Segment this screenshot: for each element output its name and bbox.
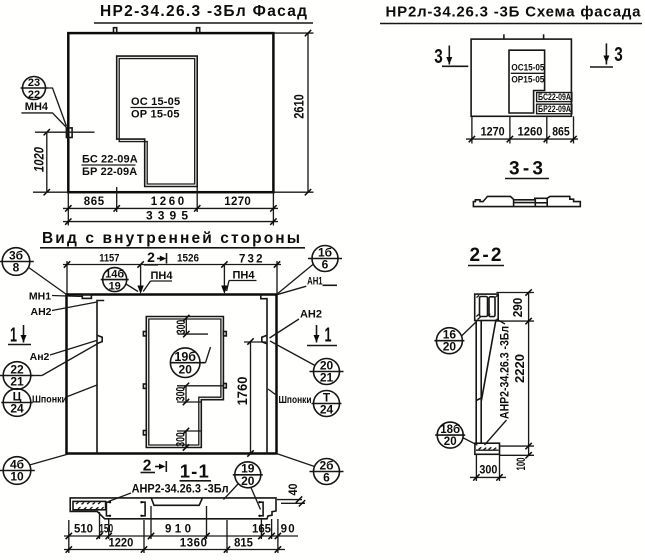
svg-text:300: 300 (175, 387, 187, 402)
svg-text:Шпонки: Шпонки (32, 394, 67, 406)
svg-text:6: 6 (322, 258, 329, 272)
svg-text:815: 815 (234, 537, 253, 549)
svg-text:1157: 1157 (99, 253, 119, 265)
svg-text:3-3: 3-3 (509, 159, 544, 180)
svg-text:Шпонки: Шпонки (279, 394, 312, 406)
svg-text:3: 3 (434, 46, 443, 68)
svg-text:БР 22-09А: БР 22-09А (82, 166, 137, 178)
svg-text:732: 732 (239, 254, 263, 266)
svg-text:БС22-09А: БС22-09А (538, 92, 571, 102)
svg-text:2220: 2220 (512, 354, 527, 383)
svg-text:АН2: АН2 (300, 309, 322, 321)
svg-text:1020: 1020 (31, 147, 47, 172)
svg-text:2610: 2610 (291, 94, 307, 119)
svg-text:1760: 1760 (235, 377, 250, 406)
svg-text:МН1: МН1 (29, 291, 51, 303)
svg-text:Вид с внутренней стороны: Вид с внутренней стороны (42, 230, 300, 247)
svg-text:АНР2-34.26.3 -3Бл: АНР2-34.26.3 -3Бл (132, 482, 229, 496)
svg-text:300: 300 (175, 432, 187, 447)
svg-text:2: 2 (147, 249, 155, 265)
svg-text:1270: 1270 (224, 196, 251, 208)
svg-text:865: 865 (552, 127, 570, 139)
svg-text:24: 24 (320, 403, 334, 417)
svg-text:10: 10 (10, 470, 24, 484)
svg-text:20: 20 (444, 436, 457, 448)
svg-text:1: 1 (10, 325, 17, 347)
svg-text:ОР 15-05: ОР 15-05 (131, 109, 180, 121)
svg-text:ПН4: ПН4 (151, 270, 174, 282)
svg-text:910: 910 (165, 524, 191, 536)
svg-text:2-2: 2-2 (470, 245, 503, 266)
svg-text:Ан2: Ан2 (30, 351, 50, 363)
svg-text:40: 40 (288, 484, 300, 496)
svg-text:165: 165 (252, 524, 272, 536)
svg-text:ОС 15-05: ОС 15-05 (131, 96, 180, 108)
svg-text:БР22-09А: БР22-09А (538, 104, 571, 114)
svg-text:290: 290 (511, 298, 525, 318)
svg-text:АН1: АН1 (307, 276, 323, 288)
svg-text:ОС15-05: ОС15-05 (511, 63, 545, 74)
svg-text:АН2: АН2 (30, 306, 51, 318)
svg-text:21: 21 (320, 371, 334, 385)
svg-text:510: 510 (74, 524, 93, 536)
svg-text:1: 1 (325, 325, 332, 347)
svg-text:ОР15-05: ОР15-05 (511, 75, 545, 86)
svg-text:19: 19 (109, 281, 121, 293)
svg-text:100: 100 (514, 457, 528, 470)
svg-text:АНР2-34.26.3 -3Бл: АНР2-34.26.3 -3Бл (498, 326, 512, 419)
svg-text:150: 150 (99, 524, 113, 536)
svg-text:ПН4: ПН4 (233, 270, 256, 282)
svg-text:22: 22 (28, 89, 40, 101)
svg-text:МН4: МН4 (25, 101, 49, 113)
svg-text:24: 24 (10, 402, 24, 416)
svg-text:1270: 1270 (481, 127, 505, 139)
svg-text:300: 300 (176, 320, 188, 335)
svg-text:8: 8 (13, 261, 20, 275)
svg-text:20: 20 (179, 362, 193, 376)
svg-text:БС 22-09А: БС 22-09А (82, 154, 138, 166)
svg-text:1220: 1220 (109, 537, 134, 549)
svg-text:3: 3 (614, 44, 623, 66)
svg-text:1360: 1360 (180, 537, 207, 549)
svg-text:1260: 1260 (518, 127, 543, 139)
svg-text:90: 90 (281, 524, 295, 536)
svg-text:1-1: 1-1 (180, 461, 210, 482)
svg-text:23: 23 (28, 77, 40, 89)
svg-text:20: 20 (241, 474, 255, 488)
svg-text:14б: 14б (105, 268, 124, 280)
svg-text:18б: 18б (440, 424, 460, 436)
svg-text:1526: 1526 (177, 253, 199, 265)
svg-text:НР2л-34.26.3 -3Б Схема фасада: НР2л-34.26.3 -3Б Схема фасада (386, 4, 642, 21)
svg-text:300: 300 (479, 464, 497, 476)
svg-text:20: 20 (443, 340, 457, 354)
svg-text:865: 865 (84, 196, 105, 208)
svg-text:21: 21 (10, 375, 24, 389)
svg-text:6: 6 (323, 471, 330, 485)
